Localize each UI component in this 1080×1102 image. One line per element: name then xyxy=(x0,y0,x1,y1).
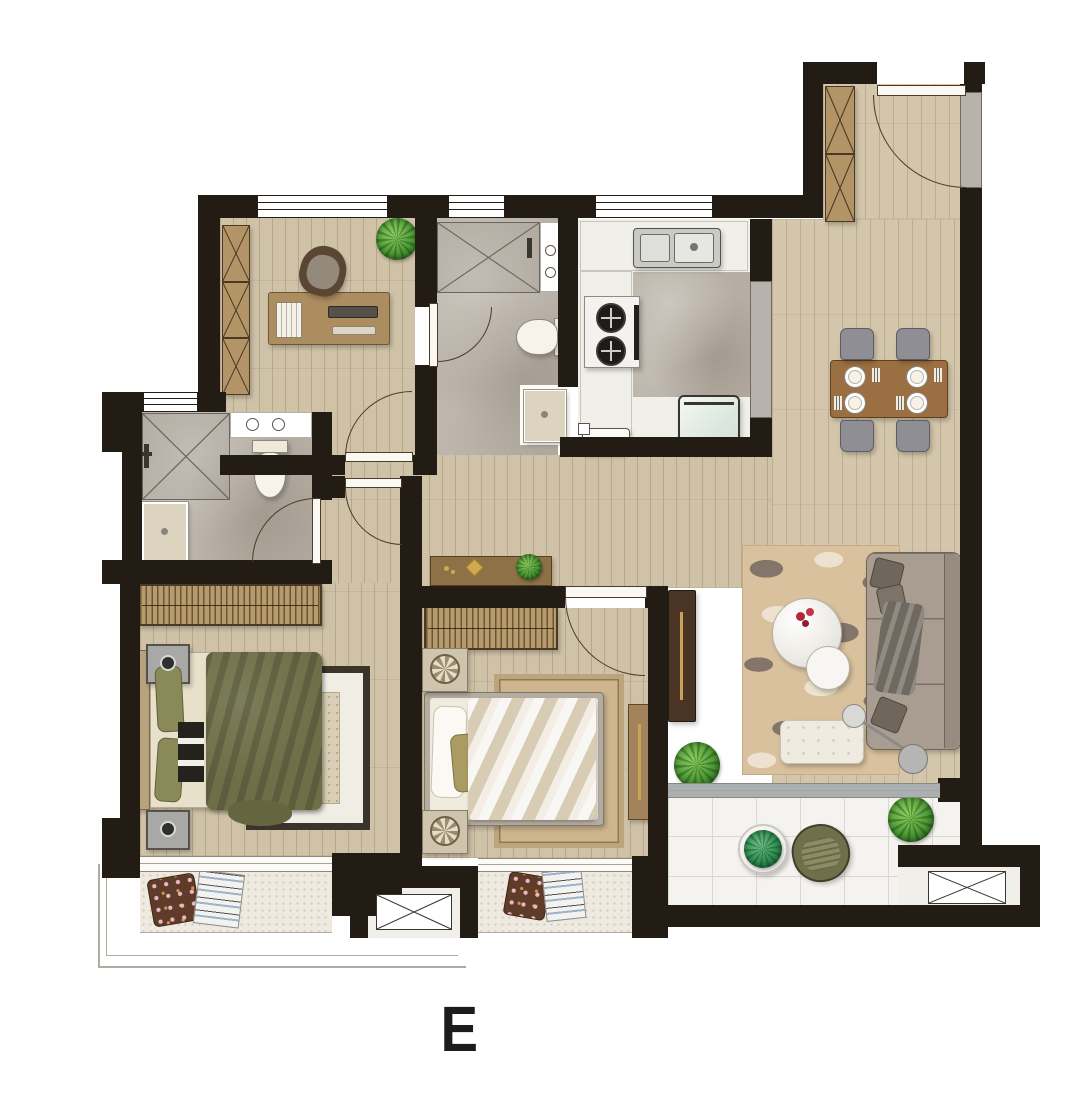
wall xyxy=(415,217,437,307)
wall xyxy=(632,856,668,938)
bath2-vanity-counter xyxy=(540,222,560,292)
bath2-washbasin-faucet-icon xyxy=(541,411,548,418)
master-nightstand-decor-icon xyxy=(160,821,176,837)
kitchen-window-icon xyxy=(595,195,713,218)
dining-cutlery-icon xyxy=(896,396,904,410)
wall xyxy=(400,476,422,878)
nightstand-decor-icon xyxy=(430,654,460,684)
dining-cutlery-icon xyxy=(934,368,942,382)
ac-outdoor-unit-icon xyxy=(376,894,452,930)
master-wardrobe-icon xyxy=(138,584,322,626)
master-duvet xyxy=(206,652,322,810)
floor-lamp-base-icon xyxy=(898,744,928,774)
kitchen-wall-socket xyxy=(578,423,590,435)
desk-books xyxy=(276,302,302,338)
bookcase-x-icon xyxy=(222,225,250,282)
bath2-toilet-bowl-icon xyxy=(516,319,558,355)
console-deco-dot xyxy=(451,570,455,574)
floor-plan: E xyxy=(0,0,1080,1102)
bookcase-x-icon xyxy=(222,282,250,339)
bath2-window-icon xyxy=(448,195,505,218)
wall xyxy=(558,217,578,387)
dining-cutlery-icon xyxy=(872,368,880,382)
master-bedroom-door-leaf xyxy=(345,478,402,488)
wall xyxy=(102,560,332,584)
shoe-cabinet-x-icon xyxy=(825,154,855,222)
bath1-window-icon xyxy=(143,392,198,412)
dining-chair xyxy=(896,328,930,360)
stove-control-bar xyxy=(634,305,639,360)
desk-monitor xyxy=(328,306,378,318)
ac-outdoor-unit-icon xyxy=(928,871,1006,904)
wall xyxy=(400,586,565,608)
bath1-basin-icon xyxy=(246,418,259,431)
bath1-washbasin-faucet-icon xyxy=(161,528,168,535)
dining-plate-icon xyxy=(844,366,866,388)
stove-burner-icon xyxy=(596,336,626,366)
tv-console-handle xyxy=(680,612,683,700)
dining-chair xyxy=(840,328,874,360)
coffee-table-berries-icon xyxy=(806,608,814,616)
bookcase-x-icon xyxy=(222,338,250,395)
wall xyxy=(750,219,772,281)
wall xyxy=(102,818,140,878)
wall xyxy=(350,888,368,938)
unit-label: E xyxy=(441,992,479,1066)
master-balcony-magazines xyxy=(193,869,245,928)
study-plant-icon xyxy=(376,218,418,260)
master-duvet-fold xyxy=(228,800,292,826)
wall xyxy=(312,476,345,498)
kitchen-marble-floor xyxy=(633,272,750,397)
living-balcony-sliding-door xyxy=(668,783,940,798)
console-plant-icon xyxy=(516,554,542,580)
bath2-shower-area xyxy=(437,222,540,293)
wall xyxy=(413,455,437,475)
bedroom2-tv-cabinet-handle xyxy=(638,724,641,800)
refrigerator-handle xyxy=(684,402,734,405)
coffee-table-small xyxy=(806,646,850,690)
bath2-shower-fixture-icon xyxy=(527,238,532,258)
wall xyxy=(668,905,1040,927)
living-room-plant-icon xyxy=(674,742,720,788)
dining-plate-icon xyxy=(906,366,928,388)
desk-keyboard xyxy=(332,326,376,335)
bedroom2-balcony-magazines xyxy=(541,868,586,922)
master-balcony-window-sill xyxy=(140,856,332,872)
balcony-plant-icon xyxy=(888,796,934,842)
study-bookcase xyxy=(222,225,250,395)
wall xyxy=(898,845,1040,867)
floor-lamp-head-icon xyxy=(842,704,866,728)
sofa-backrest xyxy=(944,554,960,748)
console-deco-dot xyxy=(444,566,449,571)
dining-plate-icon xyxy=(844,392,866,414)
wall xyxy=(460,888,478,938)
wall xyxy=(964,62,985,84)
kitchen-sink-basin xyxy=(640,234,670,262)
wall xyxy=(198,195,220,412)
nightstand-decor-icon xyxy=(430,816,460,846)
bath2-basin-icon xyxy=(545,267,556,278)
kitchen-faucet-icon xyxy=(690,243,698,251)
bath2-basin-icon xyxy=(545,245,556,256)
balcony-planter-plant-icon xyxy=(744,830,782,868)
dining-chair xyxy=(840,420,874,452)
wall xyxy=(415,365,437,455)
master-nightstand-decor-icon xyxy=(160,655,176,671)
bath1-shower-fixture-icon xyxy=(144,444,149,468)
wall xyxy=(220,455,345,475)
study-window-icon xyxy=(257,195,388,218)
wall xyxy=(388,195,448,218)
bath1-shower-area xyxy=(142,413,230,500)
bedroom2-duvet xyxy=(468,698,596,820)
kitchen-doorway-threshold xyxy=(750,281,772,418)
wall xyxy=(350,866,478,888)
shoe-cabinet-x-icon xyxy=(825,86,855,154)
wall xyxy=(938,778,962,802)
stove-burner-icon xyxy=(596,303,626,333)
bedroom2-wardrobe-icon xyxy=(424,606,558,650)
wall xyxy=(505,195,595,218)
dining-chair xyxy=(896,420,930,452)
wall xyxy=(803,62,823,218)
bedroom2-balcony-window-sill xyxy=(478,858,632,872)
dining-plate-icon xyxy=(906,392,928,414)
wall xyxy=(560,437,772,457)
coffee-table-berries-icon xyxy=(802,620,809,627)
wall xyxy=(102,392,142,452)
wall xyxy=(198,392,226,412)
master-bed-runner xyxy=(178,722,204,782)
dining-cutlery-icon xyxy=(834,396,842,410)
bath1-basin-icon xyxy=(272,418,285,431)
wall-right xyxy=(960,84,982,848)
bath1-shower-fixture-knob xyxy=(141,452,152,456)
bath1-vanity-counter xyxy=(230,412,312,438)
entry-shoe-cabinet xyxy=(825,86,855,222)
